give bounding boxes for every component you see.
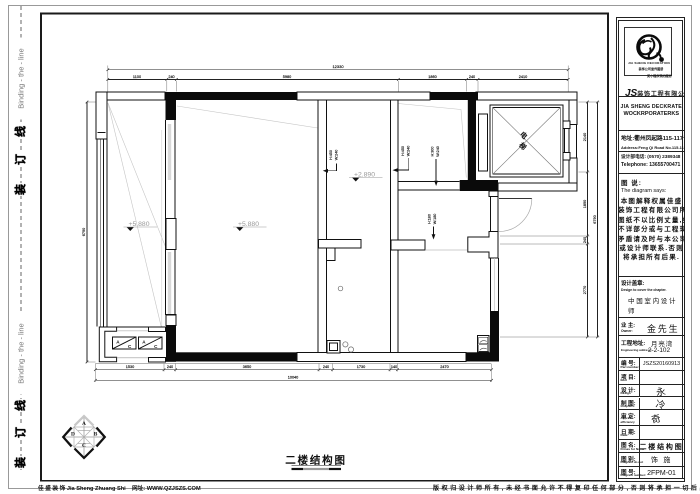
svg-text:W:240: W:240 <box>334 150 338 161</box>
svg-text:5980: 5980 <box>283 75 291 79</box>
svg-text:W:240: W:240 <box>436 146 440 157</box>
svg-text:1530: 1530 <box>126 365 134 369</box>
svg-text:2410: 2410 <box>519 75 527 79</box>
svg-text:12330: 12330 <box>332 64 344 69</box>
svg-text:W:240: W:240 <box>406 146 410 157</box>
svg-text:2470: 2470 <box>440 365 448 369</box>
svg-text:6790: 6790 <box>82 228 86 236</box>
svg-text:240: 240 <box>469 75 475 79</box>
svg-text:D: D <box>71 432 75 438</box>
svg-text:140: 140 <box>391 365 397 369</box>
svg-text:C: C <box>82 443 86 449</box>
svg-text:1890: 1890 <box>583 200 587 208</box>
svg-text:240: 240 <box>583 237 587 243</box>
svg-text:W:180: W:180 <box>433 214 437 225</box>
svg-text:装饰公司宣传图册: 装饰公司宣传图册 <box>638 66 665 71</box>
svg-text:1860: 1860 <box>428 75 436 79</box>
svg-text:3650: 3650 <box>243 365 251 369</box>
svg-text:1730: 1730 <box>357 365 365 369</box>
svg-text:1100: 1100 <box>133 75 141 79</box>
svg-text:6790: 6790 <box>593 215 597 223</box>
svg-text:H:450: H:450 <box>401 146 405 156</box>
svg-text:H:180: H:180 <box>428 214 432 224</box>
svg-text:240: 240 <box>167 365 173 369</box>
svg-text:二楼结构图: 二楼结构图 <box>285 454 347 467</box>
svg-text:A: A <box>82 421 86 427</box>
svg-text:H:300: H:300 <box>431 147 435 157</box>
svg-text:10040: 10040 <box>288 376 299 380</box>
svg-text:2140: 2140 <box>583 133 587 141</box>
svg-text:B: B <box>94 432 98 438</box>
svg-text:JIA SHENG DECORATION: JIA SHENG DECORATION <box>628 61 671 65</box>
svg-text:240: 240 <box>168 75 174 79</box>
svg-text:2770: 2770 <box>583 286 587 294</box>
svg-text:240: 240 <box>323 365 329 369</box>
svg-text:H:450: H:450 <box>329 150 333 160</box>
